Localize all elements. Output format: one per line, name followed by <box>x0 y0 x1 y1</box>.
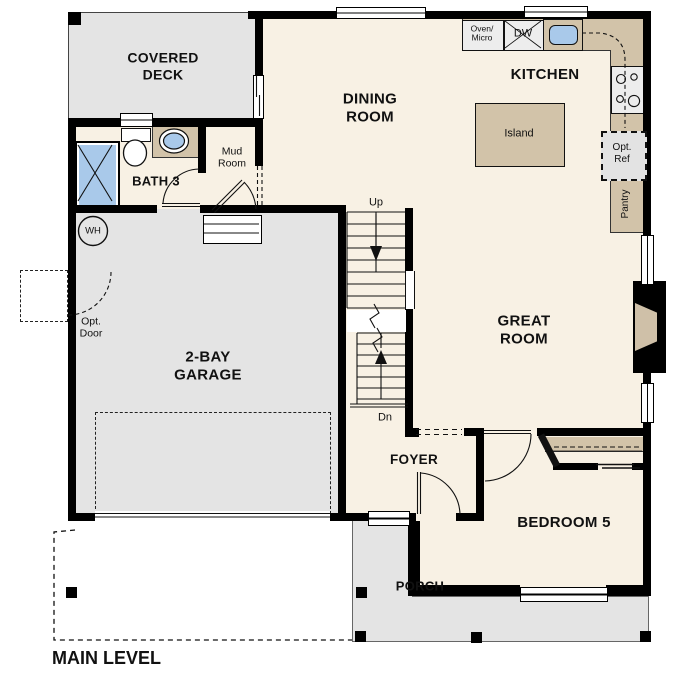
bedroom5-label: BEDROOM 5 <box>517 514 611 532</box>
window-bedroom <box>520 587 608 602</box>
mud-room-label: Mud Room <box>218 146 246 171</box>
wall-dining-left-1 <box>255 11 263 76</box>
floor-plan: COVERED DECK DINING ROOM KITCHEN Island … <box>0 0 687 687</box>
deck-post <box>68 12 81 25</box>
wall-garage-bottom-left <box>68 513 95 521</box>
wall-top <box>248 11 651 19</box>
foyer-floor <box>345 428 415 518</box>
drive-post <box>66 587 77 598</box>
water-heater-label: WH <box>85 225 101 236</box>
window-greatroom-right-2 <box>641 383 654 423</box>
wall-garage-right <box>338 205 346 521</box>
kitchen-label: KITCHEN <box>511 66 580 84</box>
opt-door-label: Opt. Door <box>80 316 103 341</box>
wall-bath-mud-divider <box>198 118 206 173</box>
window-greatroom-right-1 <box>641 235 654 285</box>
wall-garage-top-2 <box>200 205 345 213</box>
garage-door-track-outline <box>95 412 331 514</box>
great-room-label: GREAT ROOM <box>498 312 551 347</box>
wall-right-mid <box>643 373 651 383</box>
bath3-label: BATH 3 <box>132 173 180 188</box>
garage-door <box>95 511 330 521</box>
wall-right-lower <box>643 421 651 596</box>
dining-room-label: DINING ROOM <box>343 90 397 125</box>
wall-greatroom-bedroom-right <box>537 428 651 436</box>
window-bath <box>120 113 153 127</box>
bedroom-floor <box>412 428 648 598</box>
stairs-railing-gap <box>405 271 415 309</box>
window-kitchen-top <box>524 6 588 18</box>
oven-micro-label: Oven/ Micro <box>471 25 494 44</box>
wall-garage-top-1 <box>68 205 157 213</box>
opt-ref-label: Opt. Ref <box>613 142 632 166</box>
porch-post-1 <box>356 587 367 598</box>
wall-right-upper <box>643 11 651 235</box>
mudroom-steps <box>203 215 262 244</box>
toilet-tank <box>121 128 151 142</box>
wall-stairs-right-2 <box>405 307 413 436</box>
kitchen-sink <box>549 25 578 45</box>
wall-foyer-bottom-1 <box>338 513 370 521</box>
wall-stairs-right-1 <box>405 208 413 273</box>
shower <box>75 141 120 209</box>
porch-post-3 <box>471 632 482 643</box>
stairs-down-label: Dn <box>378 412 392 425</box>
garage-label: 2-BAY GARAGE <box>174 348 242 383</box>
window-foyer <box>368 511 410 526</box>
wall-deck-bottom <box>68 118 263 127</box>
porch-post-2 <box>355 631 366 642</box>
window-dining-top <box>336 7 426 19</box>
plan-title: MAIN LEVEL <box>52 648 161 669</box>
wall-dining-left-2 <box>255 116 263 166</box>
covered-deck-label: COVERED DECK <box>127 49 198 82</box>
wall-bedroom-hall-divider <box>476 428 484 521</box>
cooktop-box <box>611 66 645 114</box>
dishwasher-label: DW <box>514 28 532 41</box>
closet-shelf <box>545 437 643 452</box>
wall-closet-front-right <box>632 463 643 470</box>
porch-post-4 <box>640 631 651 642</box>
wall-closet-front <box>553 463 598 470</box>
stairs-up-label: Up <box>369 197 383 210</box>
opt-door-outline <box>20 270 68 322</box>
porch-label: PORCH <box>396 578 444 593</box>
porch-area-right <box>412 596 649 642</box>
vanity <box>152 124 199 158</box>
island-label: Island <box>504 128 533 141</box>
foyer-label: FOYER <box>390 452 438 468</box>
wall-left <box>68 118 76 521</box>
wall-stairs-corner <box>405 428 419 437</box>
wall-bedroom-bottom-2 <box>606 585 651 596</box>
driveway-outline <box>54 530 352 640</box>
slider-deck-door <box>253 75 264 119</box>
pantry-label: Pantry <box>620 190 632 219</box>
